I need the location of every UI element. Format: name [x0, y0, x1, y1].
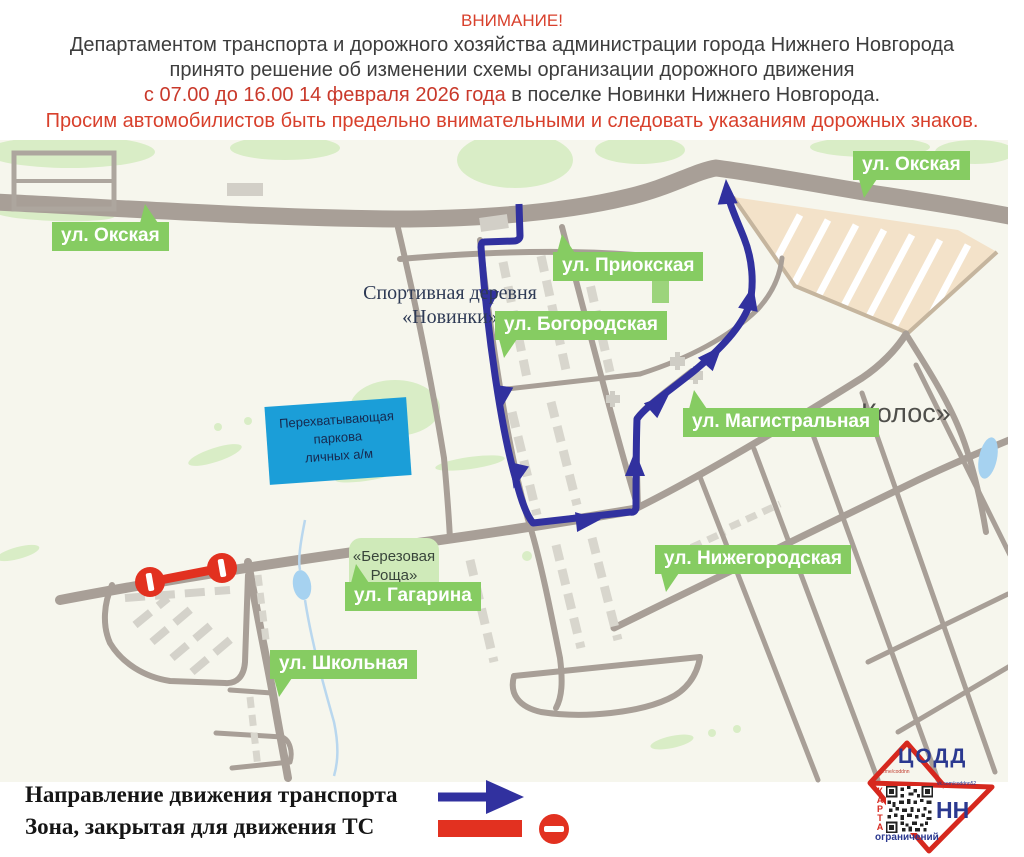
- label-pointer: [557, 234, 575, 253]
- label-pointer: [274, 678, 292, 697]
- logo-org-name: ЦОДД: [898, 745, 967, 769]
- header-line-4: Просим автомобилистов быть предельно вни…: [0, 110, 1024, 132]
- map: Спортивная деревня «Новинки» «Колос» «Бе…: [0, 140, 1024, 785]
- street-label-shkolnaya: ул. Школьная: [270, 650, 417, 679]
- street-label-priokskaya: ул. Приокская: [553, 252, 703, 281]
- label-pointer: [499, 339, 517, 358]
- street-label-magistralnaya: ул. Магистральная: [683, 408, 879, 437]
- label-pointer: [661, 573, 679, 592]
- header: ВНИМАНИЕ! Департаментом транспорта и дор…: [0, 0, 1024, 140]
- logo-telegram-link: t.me/coddnn: [882, 769, 910, 775]
- closed-zone-icon: [438, 814, 569, 844]
- codd-logo: ЦОДД t.me/coddnn vk.com/coddnn52 КАРТА Н…: [852, 737, 1020, 857]
- label-pointer: [351, 564, 369, 583]
- direction-arrow-icon: [438, 780, 524, 814]
- header-date-range: с 07.00 до 16.00 14 февраля 2026 года: [144, 84, 506, 106]
- logo-vk-link: vk.com/coddnn52: [937, 781, 976, 787]
- logo-city: НН: [936, 797, 969, 824]
- label-pointer: [140, 204, 158, 223]
- logo-vertical-word: КАРТА: [875, 787, 885, 832]
- street-label-bogorodskaya: ул. Богородская: [495, 311, 667, 340]
- legend-icons: [438, 778, 588, 853]
- intercept-parking-box: Перехватывающая паркова личных а/м: [264, 397, 411, 485]
- label-pointer: [689, 390, 707, 409]
- label-pointer: [859, 179, 877, 198]
- legend-closed-zone-label: Зона, закрытая для движения ТС: [25, 814, 374, 840]
- header-line-1: Департаментом транспорта и дорожного хоз…: [0, 34, 1024, 56]
- header-line-3: с 07.00 до 16.00 14 февраля 2026 года в …: [0, 84, 1024, 106]
- header-line-2: принято решение об изменении схемы орган…: [0, 59, 1024, 81]
- logo-caption: ограничений: [875, 832, 939, 843]
- street-label-okskaya-right: ул. Окская: [853, 151, 970, 180]
- header-location: в поселке Новинки Нижнего Новгорода.: [506, 84, 880, 106]
- street-label-gagarina: ул. Гагарина: [345, 582, 481, 611]
- street-label-okskaya-left: ул. Окская: [52, 222, 169, 251]
- legend-direction-label: Направление движения транспорта: [25, 782, 398, 808]
- street-label-nizhegorodskaya: ул. Нижегородская: [655, 545, 851, 574]
- qr-code: [886, 786, 933, 833]
- attention-title: ВНИМАНИЕ!: [0, 0, 1024, 31]
- traffic-notice-poster: ВНИМАНИЕ! Департаментом транспорта и дор…: [0, 0, 1024, 857]
